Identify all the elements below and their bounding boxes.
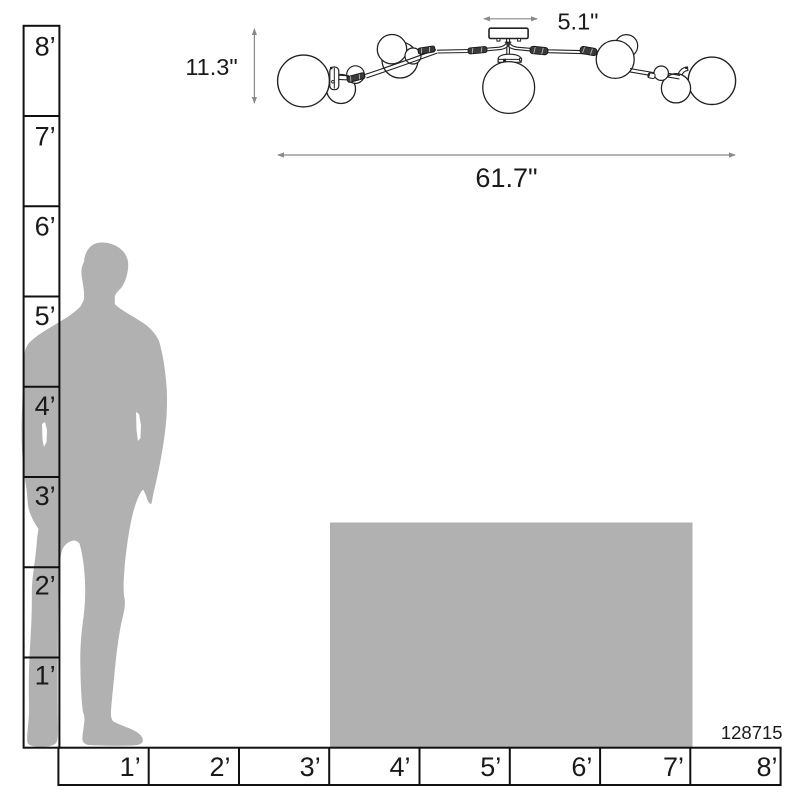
svg-text:3’: 3’ xyxy=(300,752,321,782)
svg-text:5’: 5’ xyxy=(480,752,501,782)
svg-text:2’: 2’ xyxy=(209,752,230,782)
svg-text:5’: 5’ xyxy=(35,301,56,331)
svg-text:2’: 2’ xyxy=(35,571,56,601)
svg-text:6’: 6’ xyxy=(571,752,592,782)
svg-text:6’: 6’ xyxy=(35,211,56,241)
svg-text:3’: 3’ xyxy=(35,481,56,511)
svg-text:11.3": 11.3" xyxy=(185,54,237,80)
svg-text:8’: 8’ xyxy=(756,752,777,782)
svg-text:5.1": 5.1" xyxy=(557,8,598,34)
svg-text:8’: 8’ xyxy=(35,32,56,62)
svg-text:7’: 7’ xyxy=(663,752,684,782)
svg-text:128715: 128715 xyxy=(721,722,783,743)
svg-text:1’: 1’ xyxy=(35,660,56,690)
svg-text:4’: 4’ xyxy=(389,752,410,782)
svg-text:7’: 7’ xyxy=(35,122,56,152)
svg-text:4’: 4’ xyxy=(35,391,56,421)
svg-text:61.7": 61.7" xyxy=(475,163,537,193)
svg-text:1’: 1’ xyxy=(120,752,141,782)
